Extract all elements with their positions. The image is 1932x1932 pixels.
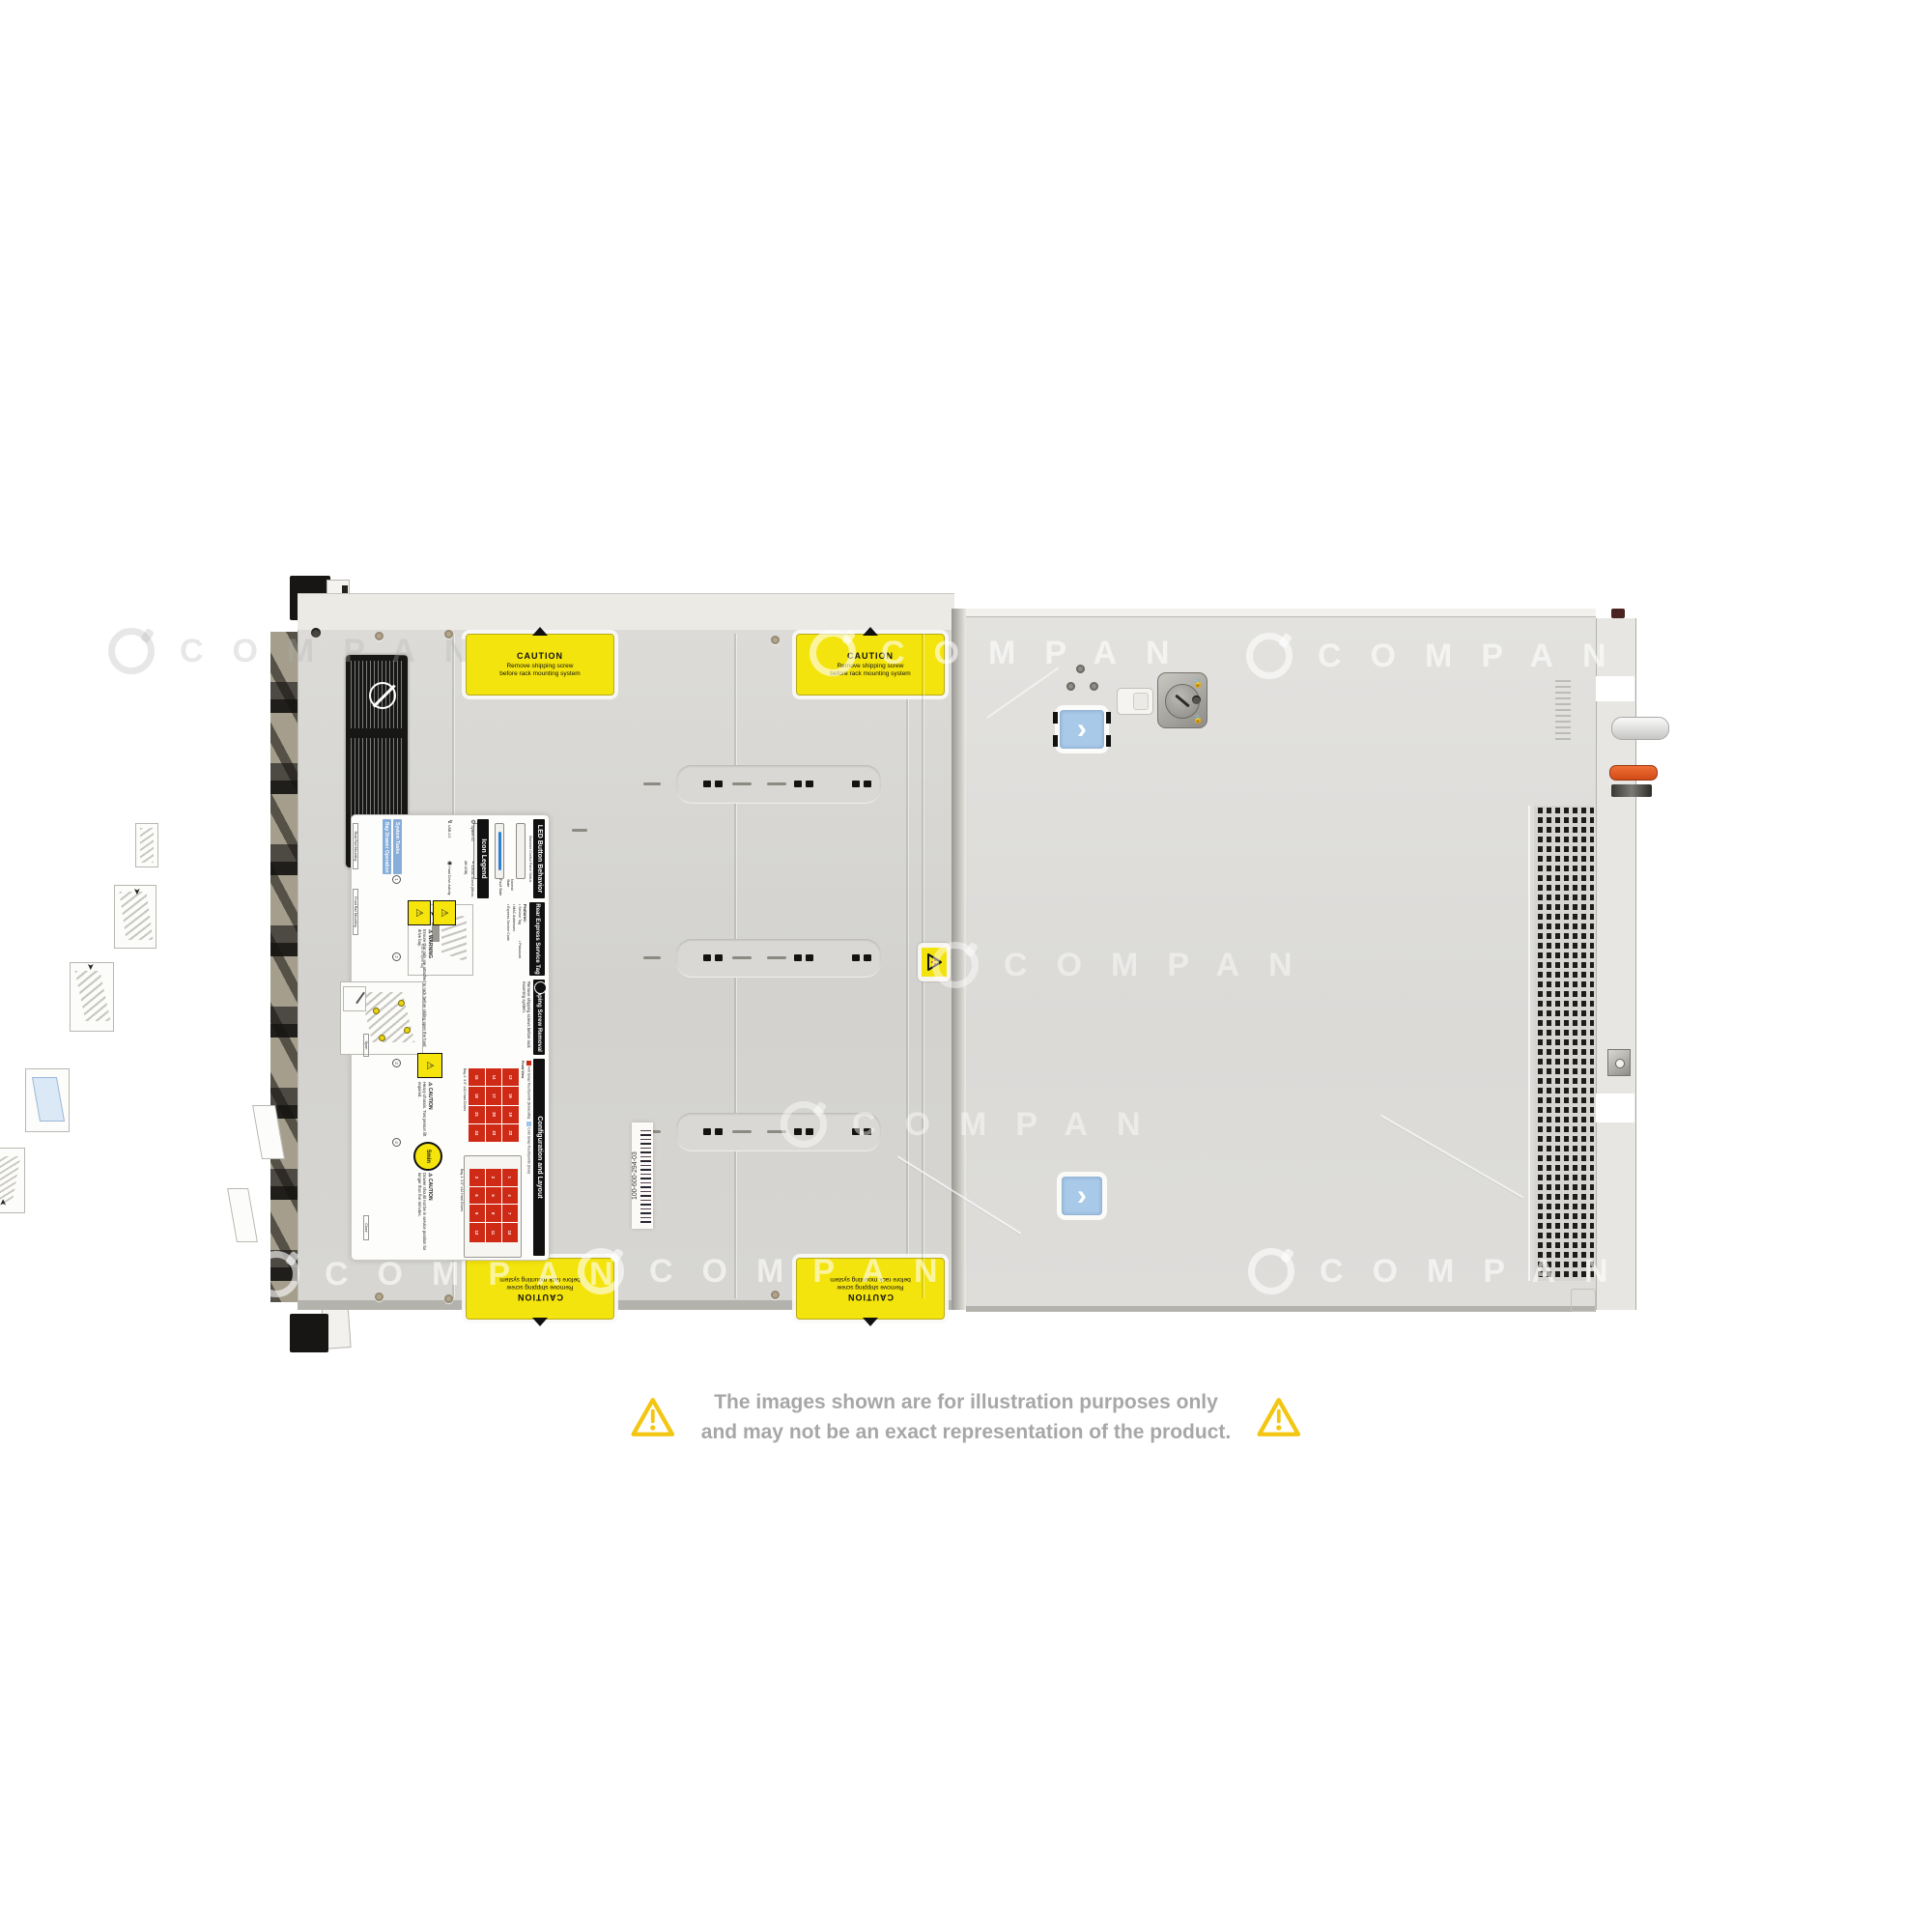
status-bar-blank [516, 823, 526, 879]
latch-diagram [25, 1068, 70, 1132]
drive-number-cell: 15 [469, 1068, 485, 1086]
hook-slot [806, 1128, 813, 1135]
rail-diagram: ➤ [114, 885, 156, 949]
feature-item: • Express Service Code [506, 904, 510, 962]
close-caption: Close [363, 1215, 369, 1240]
rivet [444, 630, 453, 639]
sketch-drawer [74, 971, 110, 1021]
drive-number-cell: 12 [469, 1223, 485, 1242]
drive-number-cell: 3 [469, 1169, 485, 1186]
cover-latch-slider[interactable] [1117, 688, 1153, 715]
instruction-label-anchor: LED Button Behavior Standard Control Pan… [227, 938, 671, 1135]
caution-title: CAUTION [847, 651, 894, 662]
no-disassemble-icon [369, 682, 396, 709]
screw-marker [373, 1008, 380, 1014]
hook-slot [715, 1128, 723, 1135]
front-rail-caption: Front Rail Mounting [353, 889, 358, 935]
caution-heavy-body: Heavy chassis. Two person lift required. [417, 1082, 428, 1138]
config-legend: Hot Swap Touchpoints (terracotta) Cold S… [526, 1061, 531, 1258]
barcode-stripes [640, 1128, 651, 1223]
bay1-caption: Bay 1: 3.5" x12 Hard Drives [460, 1169, 464, 1246]
product-photo-canvas: CAUTION Remove shipping screw before rac… [0, 0, 1932, 1932]
front-view-caption: Front View [521, 1061, 525, 1078]
handle-recess-row [643, 765, 881, 804]
hook-slot [864, 954, 871, 961]
slot-dash [767, 956, 786, 959]
disclaimer-banner: The images shown are for illustration pu… [630, 1387, 1302, 1447]
bay1-drive-grid: 123456789101112 [469, 1169, 518, 1242]
caution-line: Remove shipping screw [837, 663, 903, 670]
arrow-icon: ➤ [85, 963, 96, 971]
drawer-open-diagram: ➤ [70, 962, 114, 1032]
rivet [375, 632, 384, 640]
hook-slot [794, 954, 802, 961]
features-heading: Features: [523, 904, 527, 923]
lock-icon: 🔒 [1193, 715, 1203, 724]
caution-line: before rack mounting system [830, 1275, 910, 1283]
handle-recess-row [643, 1113, 881, 1151]
icon-legend-title: Icon Legend [479, 838, 486, 878]
unlock-icon: 🔓 [1193, 679, 1203, 688]
sketch-rail [140, 828, 154, 863]
bay2-drive-grid: 131415161718192021222324 [469, 1068, 519, 1142]
rivet [444, 1294, 453, 1303]
slot-dash [732, 1130, 752, 1133]
server-chassis: CAUTION Remove shipping screw before rac… [269, 576, 1671, 1358]
pointer-triangle-icon [863, 1318, 878, 1326]
status-bar-normal [495, 823, 504, 879]
cover-key-lock[interactable]: 🔓 🔒 [1157, 672, 1207, 728]
cover-release-touchpoint-bottom[interactable]: › [1062, 1177, 1102, 1215]
hook-slot [703, 954, 711, 961]
sketch-drawer [0, 1156, 20, 1203]
service-tag-header: Rear Express Service Tag [529, 902, 545, 976]
rail-diagram [135, 823, 158, 867]
lock-slot [1175, 695, 1190, 708]
caution-line: Remove shipping screw [507, 1283, 574, 1291]
drive-number-cell: 5 [486, 1187, 501, 1205]
fault-state-label: Fault State [498, 879, 502, 898]
config-title: Configuration and Layout [535, 1116, 542, 1198]
config-sketch [252, 1105, 285, 1159]
tip-hazard-pictogram: ⚠ [408, 900, 431, 925]
caution-drawer-body: Drawer should not be in service position… [417, 1173, 428, 1258]
hook-slot [715, 954, 723, 961]
shipping-body: Remove shipping screws before rack mount… [522, 981, 532, 1053]
sketch-latch [32, 1077, 65, 1122]
screwdriver-inset [343, 986, 366, 1011]
screw [1090, 682, 1098, 691]
slot-dash [767, 782, 786, 785]
led-subtitle: Standard Control Panel Status [528, 819, 532, 898]
pointer-triangle-icon [532, 1318, 548, 1326]
hook-slot [864, 781, 871, 787]
grip-icon [534, 981, 547, 994]
system-tasks-header: System Tasks [393, 819, 402, 874]
drive-number-cell: 1 [502, 1169, 518, 1186]
cover-release-touchpoint-top[interactable]: › [1060, 710, 1104, 749]
caution-heavy-title: ⚠ CAUTION [427, 1082, 433, 1138]
feature-item: • Password [518, 941, 522, 976]
warning-block: ⚠ WARNING Ensure that rails are attached… [417, 929, 434, 1047]
barcode-text: 100-600-294-03 [632, 1122, 639, 1229]
hook-slot [703, 781, 711, 787]
drive-number-cell: 23 [486, 1124, 502, 1142]
step-number: 4 [392, 1138, 401, 1147]
config-sketch [227, 1188, 258, 1242]
hazard-triangle-sticker [918, 943, 951, 981]
caution-line: Remove shipping screw [506, 663, 573, 670]
instruction-label: LED Button Behavior Standard Control Pan… [351, 814, 550, 1261]
slot-dash [767, 1130, 786, 1133]
rear-vent-grid [1534, 806, 1594, 1281]
shipping-sketch [340, 981, 423, 1055]
led-section-title: LED Button Behavior [535, 825, 542, 893]
rivet [771, 636, 780, 644]
five-minute-clock-icon: 5min [413, 1142, 442, 1171]
clip-mark [1053, 712, 1058, 724]
drive-number-cell: 10 [502, 1223, 518, 1242]
vent-edge-line [1528, 806, 1530, 1281]
warning-triangle-icon [1256, 1396, 1302, 1438]
rear-lip-notch [1596, 676, 1634, 701]
warning-triangle-icon [630, 1396, 676, 1438]
normal-state-label: Normal State [505, 879, 514, 898]
slot-dash [643, 782, 661, 785]
hook-slot [806, 781, 813, 787]
caution-title: CAUTION [517, 1292, 563, 1302]
bay-drawer-operation-header: Bay Drawer Operation [383, 819, 391, 874]
rack-ear-bottom [290, 1314, 328, 1352]
caution-title: CAUTION [847, 1292, 894, 1302]
hot-swap-swatch [526, 1061, 531, 1065]
drive-number-cell: 9 [469, 1205, 485, 1222]
hook-slot [794, 1128, 802, 1135]
disclaimer-line-2: and may not be an exact representation o… [701, 1417, 1231, 1447]
two-person-lift-pictogram: ⚠ [417, 1053, 442, 1078]
drive-number-cell: 22 [502, 1124, 519, 1142]
hook-slot [852, 1128, 860, 1135]
hazard-triangle-yellow [922, 948, 947, 977]
feature-item: • MAC Addresses [512, 904, 516, 939]
step-number: 3 [392, 1059, 401, 1067]
icon-legend-entry: ⌁ iDRAC Direct (Micro-AB USB) [454, 861, 475, 900]
caution-line: Remove shipping screw [838, 1283, 904, 1291]
drive-number-cell: 17 [486, 1087, 502, 1104]
rear-connector-bracket [1611, 784, 1652, 797]
cover-bottom-edge [966, 1306, 1596, 1312]
screw [1066, 682, 1075, 691]
caution-title: CAUTION [517, 651, 563, 662]
slot-dash [732, 782, 752, 785]
system-id-icon: ⚙ [469, 819, 475, 824]
led-section-header: LED Button Behavior [533, 819, 545, 898]
pointer-triangle-icon [532, 627, 548, 636]
screw-hole [311, 628, 321, 638]
service-tag-title: Rear Express Service Tag [534, 903, 540, 974]
icon-legend-grid: ⚙ System ID ⌁ iDRAC Direct (Micro-AB USB… [435, 819, 475, 900]
barcode-label: 100-600-294-03 [632, 1122, 653, 1229]
caution-drawer-title: ⚠ CAUTION [427, 1173, 433, 1258]
caution-heavy-block: ⚠ CAUTION Heavy chassis. Two person lift… [417, 1082, 434, 1138]
icon-legend-header: Icon Legend [477, 819, 489, 898]
drive-number-cell: 21 [469, 1106, 485, 1123]
rear-clip [1607, 1049, 1631, 1076]
handle-recess-row [643, 939, 881, 978]
cover-top-highlight [966, 609, 1596, 617]
chevron-right-icon: › [1077, 713, 1087, 746]
caution-shipping-screw-label: CAUTION Remove shipping screw before rac… [466, 634, 614, 696]
drive-number-cell: 2 [486, 1169, 501, 1186]
screw-marker [404, 1027, 411, 1034]
cold-swap-swatch [526, 1122, 531, 1126]
sketch-rail [119, 892, 153, 940]
disclaimer-text: The images shown are for illustration pu… [701, 1387, 1231, 1447]
drive-number-cell: 24 [469, 1124, 485, 1142]
caution-line: before rack mounting system [499, 670, 580, 678]
drive-number-cell: 14 [486, 1068, 502, 1086]
cover-hinge-seam [952, 609, 967, 1310]
drawer-top-rim [298, 593, 954, 634]
usb-icon: ↯ [446, 819, 452, 824]
slot-dash [572, 829, 587, 832]
chevron-right-icon: › [1077, 1179, 1087, 1212]
hook-slot [794, 781, 802, 787]
clip-mark [1106, 712, 1111, 724]
latch-slider-pad [1133, 693, 1149, 710]
drive-number-cell: 13 [502, 1068, 519, 1086]
screw-marker [379, 1035, 385, 1041]
bay2-caption: Bay 2: 3.5" x12 Hard Drives [463, 1068, 467, 1146]
clip-screw [1615, 1059, 1625, 1068]
step-number: 1 [392, 875, 401, 884]
open-caption: Open [363, 1034, 369, 1057]
hook-slot [852, 781, 860, 787]
drive-number-cell: 16 [502, 1087, 519, 1104]
drive-number-cell: 11 [486, 1223, 501, 1242]
rivet [771, 1291, 780, 1299]
warning-body: Ensure that rails are attached to rack b… [417, 929, 428, 1047]
drive-number-cell: 6 [469, 1187, 485, 1205]
lid-seam [906, 634, 908, 1298]
sketch-tag [432, 923, 440, 942]
hook-slot [806, 954, 813, 961]
hook-slot [703, 1128, 711, 1135]
config-header: Configuration and Layout [533, 1059, 545, 1256]
screw [1076, 665, 1085, 673]
rear-handle[interactable] [1611, 717, 1669, 740]
caution-line: before rack mounting system [830, 670, 910, 678]
hook-slot [715, 781, 723, 787]
lock-pin [1192, 696, 1201, 704]
clip-mark [1106, 735, 1111, 747]
arrow-icon: ➤ [131, 888, 142, 895]
warning-title: ⚠ WARNING [427, 929, 433, 1047]
icon-legend-entry: ⚙ System ID [454, 819, 475, 859]
drive-number-cell: 8 [486, 1205, 501, 1222]
normal-state-fill [498, 832, 501, 869]
drive-number-cell: 19 [502, 1106, 519, 1123]
idrac-direct-icon: ⌁ [469, 861, 475, 865]
caution-line: before rack mounting system [499, 1275, 580, 1283]
watermark-logo-icon [108, 628, 155, 674]
rivet [375, 1293, 384, 1301]
rear-screw [1611, 609, 1625, 618]
screwdriver-icon [355, 992, 365, 1005]
pinch-hazard-pictogram: ⚠ [433, 900, 456, 925]
hook-slot [864, 1128, 871, 1135]
disclaimer-line-1: The images shown are for illustration pu… [701, 1387, 1231, 1417]
clip-mark [1053, 735, 1058, 747]
arrow-icon: ➤ [0, 1199, 9, 1207]
drive-number-cell: 18 [469, 1087, 485, 1104]
screw-marker [398, 1000, 405, 1007]
rear-lip-square [1571, 1289, 1596, 1312]
hook-slot [852, 954, 860, 961]
rail-release-latch-orange[interactable] [1609, 765, 1658, 781]
triangle-right-icon [924, 952, 944, 972]
caution-drawer-block: ⚠ CAUTION Drawer should not be in servic… [417, 1173, 434, 1258]
rear-lip-notch [1596, 1094, 1634, 1122]
icon-legend-entry: ↯ USB 2.0 [435, 819, 452, 859]
emboss-text-stamp [1555, 678, 1571, 740]
feature-item: • Service Tag [518, 904, 522, 939]
drive-number-cell: 20 [486, 1106, 502, 1123]
drive-number-cell: 7 [502, 1205, 518, 1222]
pointer-triangle-icon [863, 627, 878, 636]
caution-shipping-screw-label: CAUTION Remove shipping screw before rac… [466, 1258, 614, 1320]
drawer-close-diagram: ➤ [0, 1148, 25, 1213]
icon-legend-entry: ◉ Hard Drive Activity [435, 861, 452, 900]
slot-dash [732, 956, 752, 959]
step-number: 2 [392, 952, 401, 961]
rear-rail-caption: Rear Rail Mounting [353, 823, 358, 869]
hdd-activity-icon: ◉ [446, 861, 452, 866]
drive-number-cell: 4 [502, 1187, 518, 1205]
